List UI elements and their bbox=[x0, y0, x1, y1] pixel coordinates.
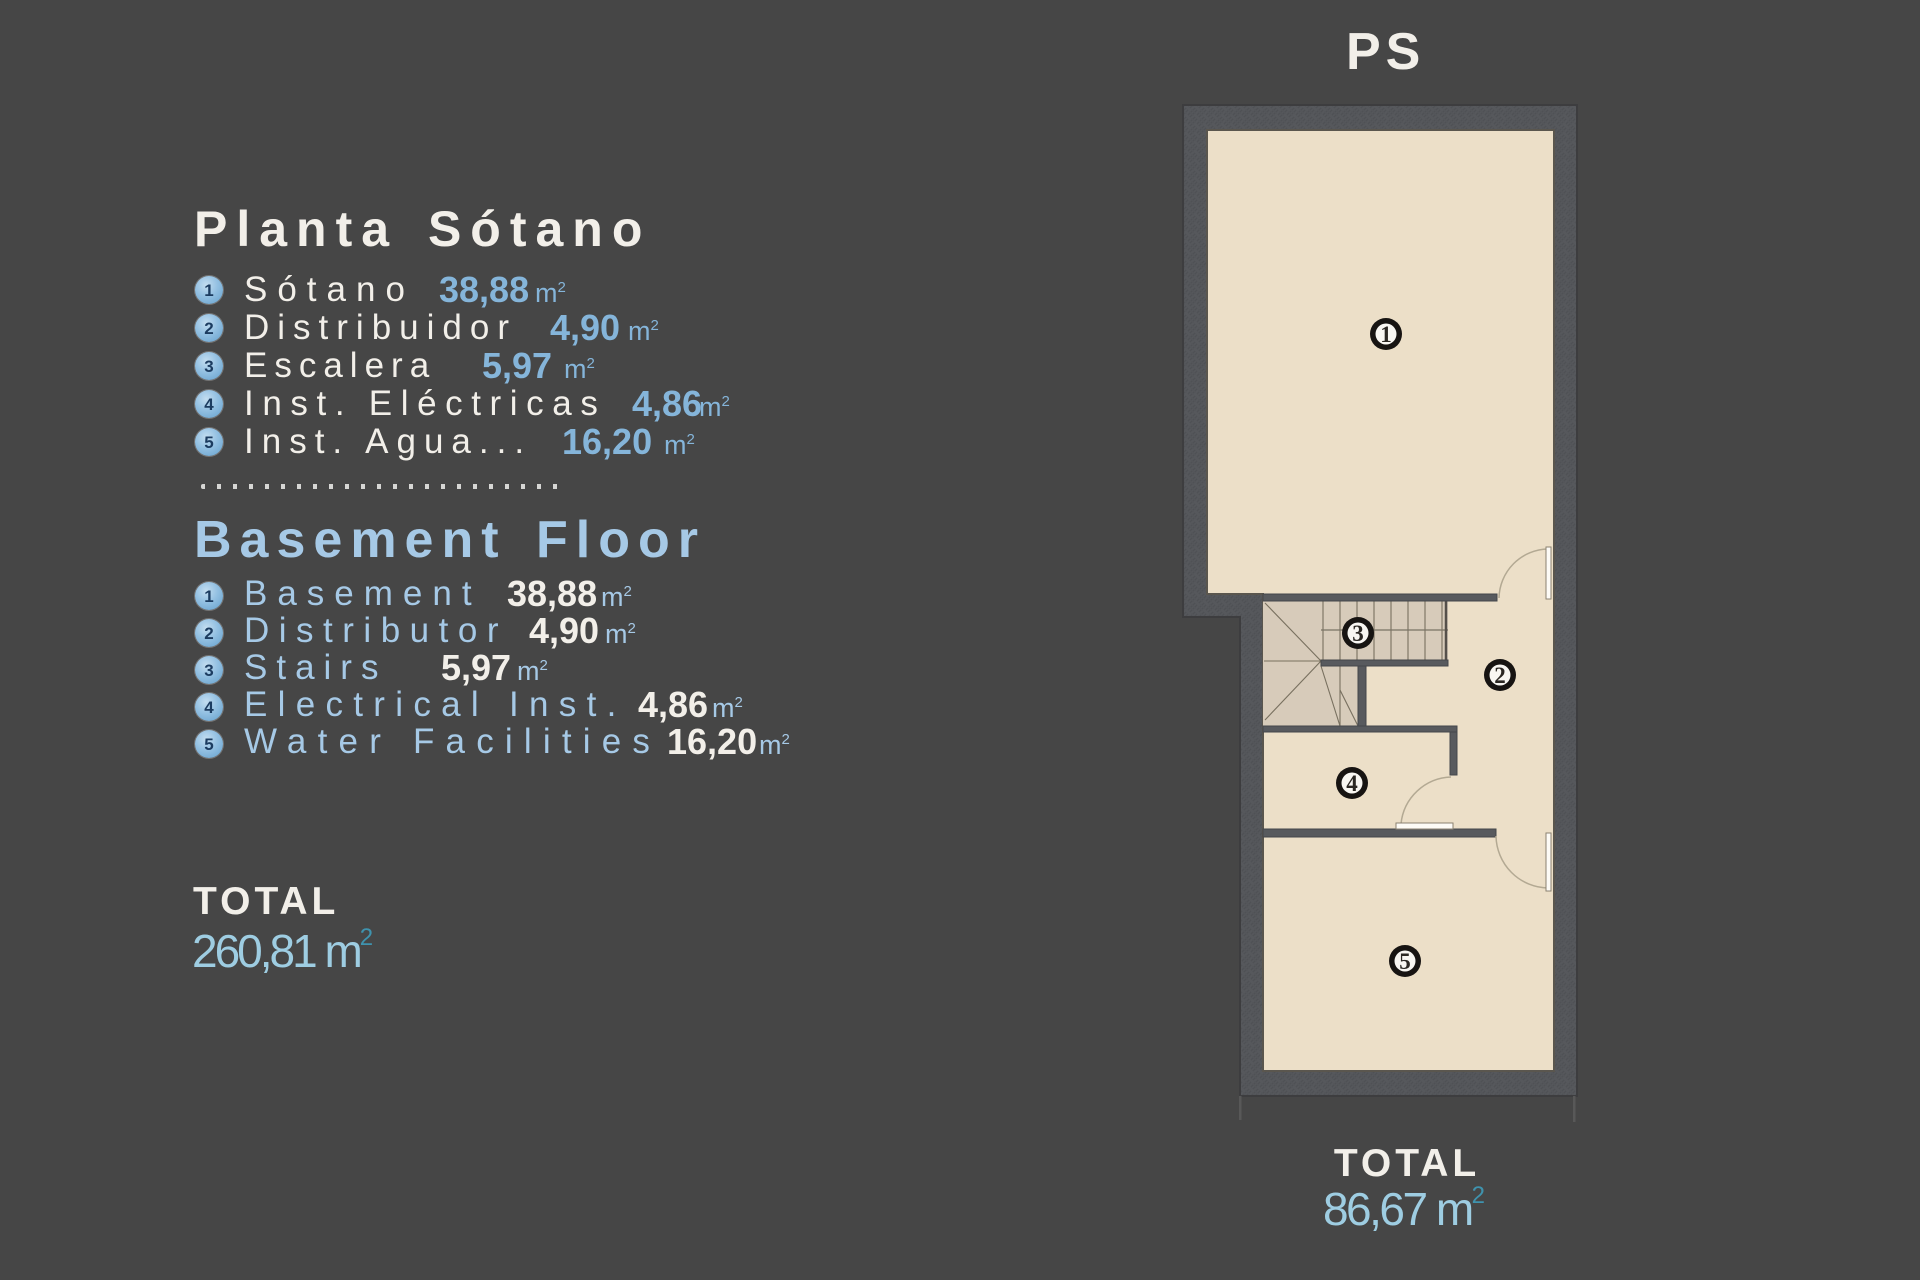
svg-text:2: 2 bbox=[1494, 663, 1506, 688]
svg-text:3: 3 bbox=[1352, 621, 1364, 646]
svg-text:1: 1 bbox=[1380, 322, 1392, 347]
svg-text:5: 5 bbox=[1399, 949, 1411, 974]
svg-text:4: 4 bbox=[1346, 771, 1358, 796]
